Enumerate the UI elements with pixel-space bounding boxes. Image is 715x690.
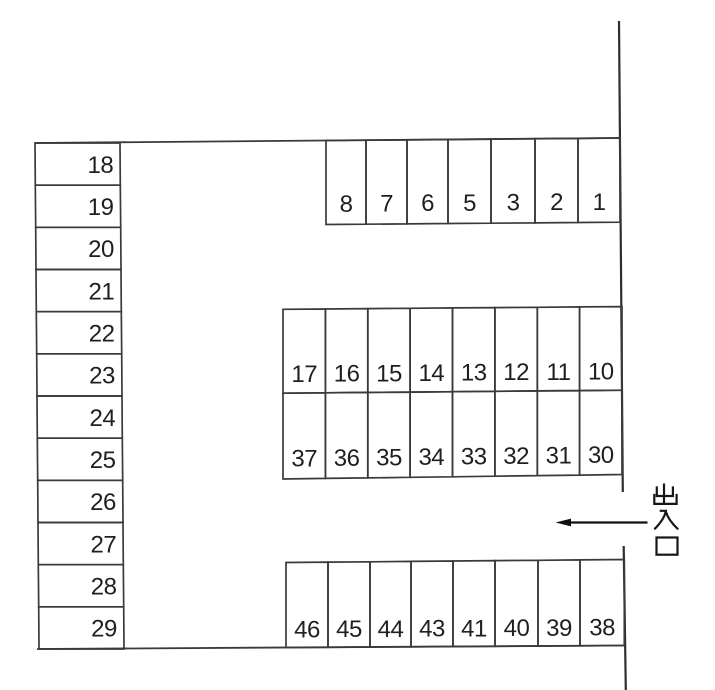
svg-text:44: 44 [378,616,404,643]
svg-text:20: 20 [88,236,114,263]
svg-text:7: 7 [380,191,393,218]
svg-text:15: 15 [376,360,402,387]
svg-text:41: 41 [461,615,487,642]
svg-text:10: 10 [588,358,614,385]
svg-text:43: 43 [419,616,445,643]
svg-text:8: 8 [340,191,353,218]
svg-text:25: 25 [90,447,116,474]
svg-text:37: 37 [291,446,317,473]
svg-text:32: 32 [503,443,529,470]
svg-text:27: 27 [90,531,116,558]
svg-text:16: 16 [334,361,360,388]
svg-text:31: 31 [546,442,572,469]
svg-text:21: 21 [88,278,114,305]
svg-text:35: 35 [376,445,402,472]
svg-text:18: 18 [87,152,113,179]
svg-text:6: 6 [421,190,434,217]
svg-text:34: 34 [418,444,444,471]
svg-text:11: 11 [547,359,571,386]
svg-text:13: 13 [461,360,487,387]
svg-text:38: 38 [589,615,615,642]
svg-text:29: 29 [91,616,117,643]
svg-text:12: 12 [503,359,529,386]
svg-text:28: 28 [91,574,117,601]
svg-text:5: 5 [463,190,476,217]
svg-text:40: 40 [504,615,530,642]
svg-text:2: 2 [550,189,563,216]
svg-text:23: 23 [89,363,115,390]
svg-text:39: 39 [546,615,572,642]
svg-text:19: 19 [88,194,114,221]
svg-text:14: 14 [418,360,444,387]
svg-text:30: 30 [588,442,614,469]
svg-text:33: 33 [461,444,487,471]
svg-text:45: 45 [336,616,362,643]
svg-text:36: 36 [334,445,360,472]
svg-text:26: 26 [90,489,116,516]
svg-text:3: 3 [507,190,520,217]
svg-text:1: 1 [593,189,606,216]
svg-text:22: 22 [89,321,115,348]
svg-text:24: 24 [89,405,115,432]
svg-text:46: 46 [294,616,320,643]
svg-text:17: 17 [291,361,317,388]
